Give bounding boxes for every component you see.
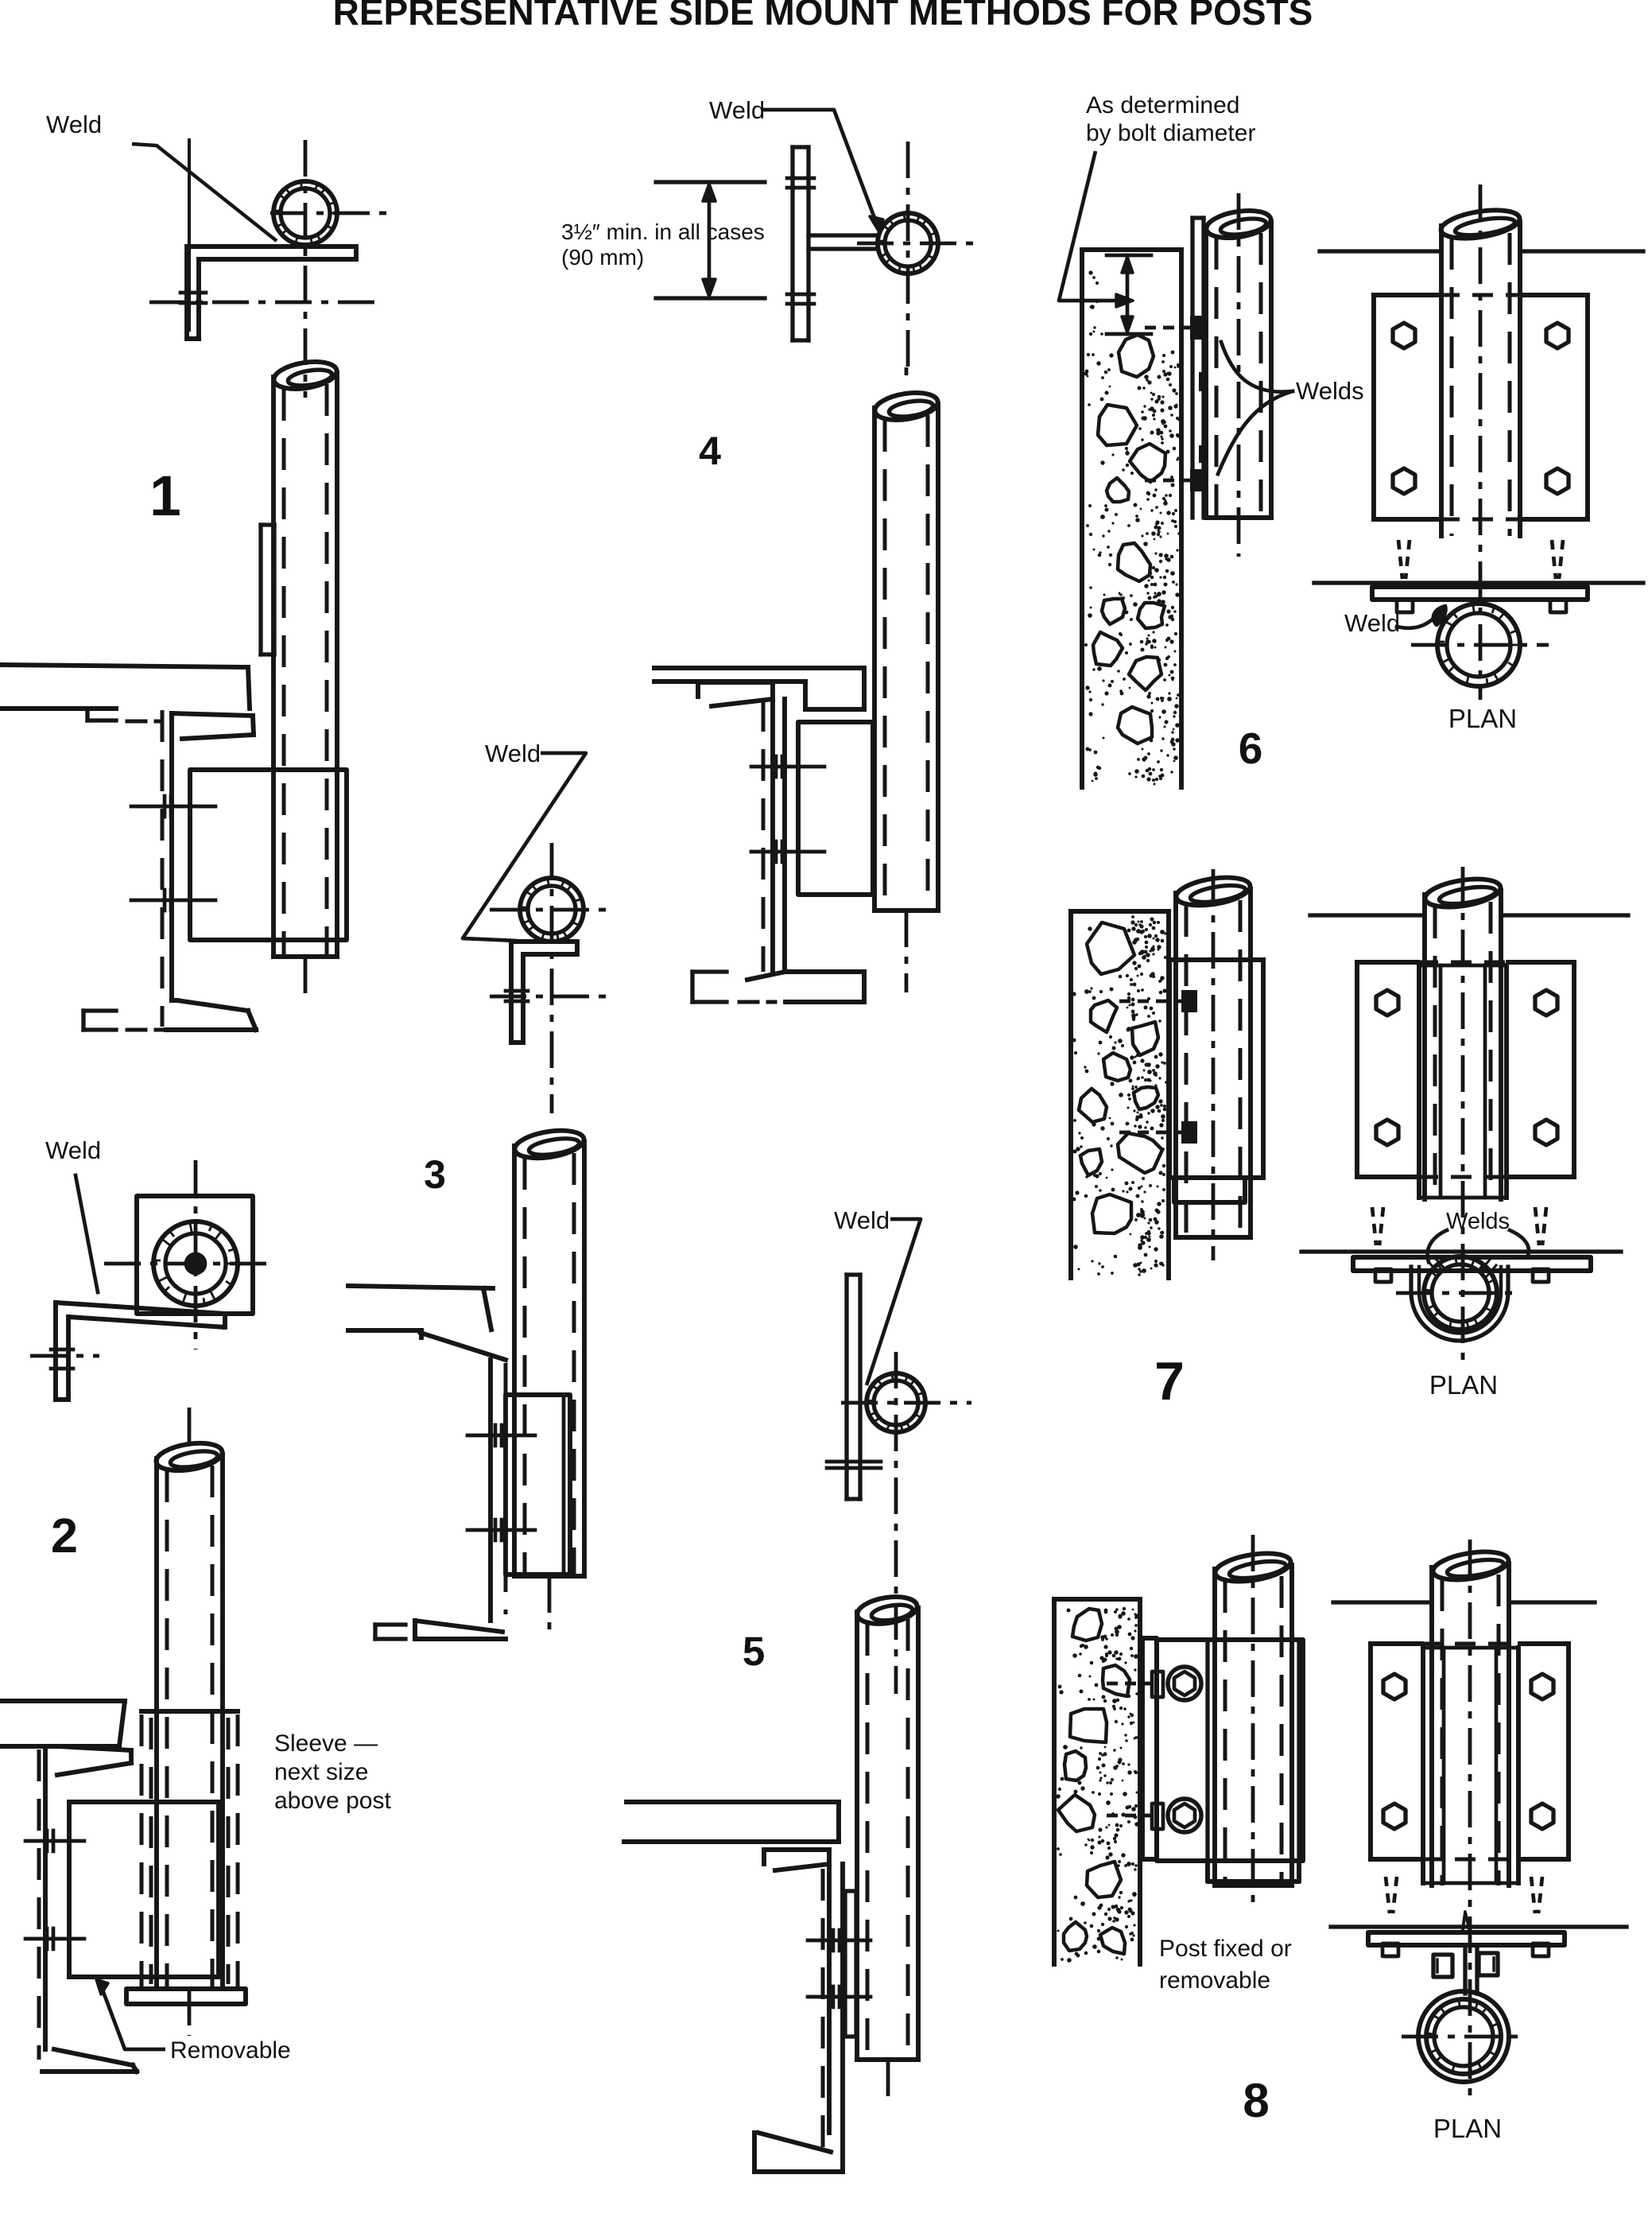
- svg-text:(90 mm): (90 mm): [561, 245, 644, 270]
- svg-text:REPRESENTATIVE SIDE MOUNT METH: REPRESENTATIVE SIDE MOUNT METHODS FOR PO…: [333, 0, 1313, 33]
- svg-text:removable: removable: [1159, 1967, 1270, 1994]
- svg-text:PLAN: PLAN: [1429, 1370, 1498, 1400]
- svg-text:Weld: Weld: [1344, 609, 1400, 637]
- svg-text:3½″ min. in all cases: 3½″ min. in all cases: [561, 219, 765, 244]
- svg-text:Weld: Weld: [485, 740, 541, 767]
- svg-text:Sleeve —: Sleeve —: [274, 1730, 378, 1757]
- svg-text:8: 8: [1243, 2074, 1269, 2127]
- svg-text:4: 4: [699, 429, 721, 473]
- svg-text:next size: next size: [274, 1759, 368, 1785]
- svg-text:Weld: Weld: [709, 96, 765, 124]
- svg-text:Removable: Removable: [170, 2037, 291, 2064]
- svg-text:Weld: Weld: [46, 111, 102, 138]
- svg-text:Weld: Weld: [45, 1136, 101, 1164]
- svg-text:PLAN: PLAN: [1433, 2114, 1502, 2143]
- svg-text:3: 3: [424, 1152, 446, 1197]
- svg-text:PLAN: PLAN: [1448, 704, 1517, 733]
- svg-text:2: 2: [51, 1509, 78, 1563]
- svg-text:6: 6: [1239, 724, 1263, 773]
- svg-text:Welds: Welds: [1446, 1209, 1510, 1234]
- svg-text:Welds: Welds: [1296, 377, 1364, 405]
- svg-text:5: 5: [743, 1629, 765, 1674]
- svg-text:7: 7: [1154, 1351, 1185, 1412]
- svg-text:1: 1: [149, 465, 181, 528]
- svg-text:As determined: As determined: [1086, 92, 1239, 118]
- svg-text:Weld: Weld: [834, 1206, 890, 1234]
- svg-text:above post: above post: [274, 1788, 391, 1814]
- svg-text:Post fixed or: Post fixed or: [1159, 1936, 1292, 1962]
- svg-text:by bolt diameter: by bolt diameter: [1086, 120, 1255, 146]
